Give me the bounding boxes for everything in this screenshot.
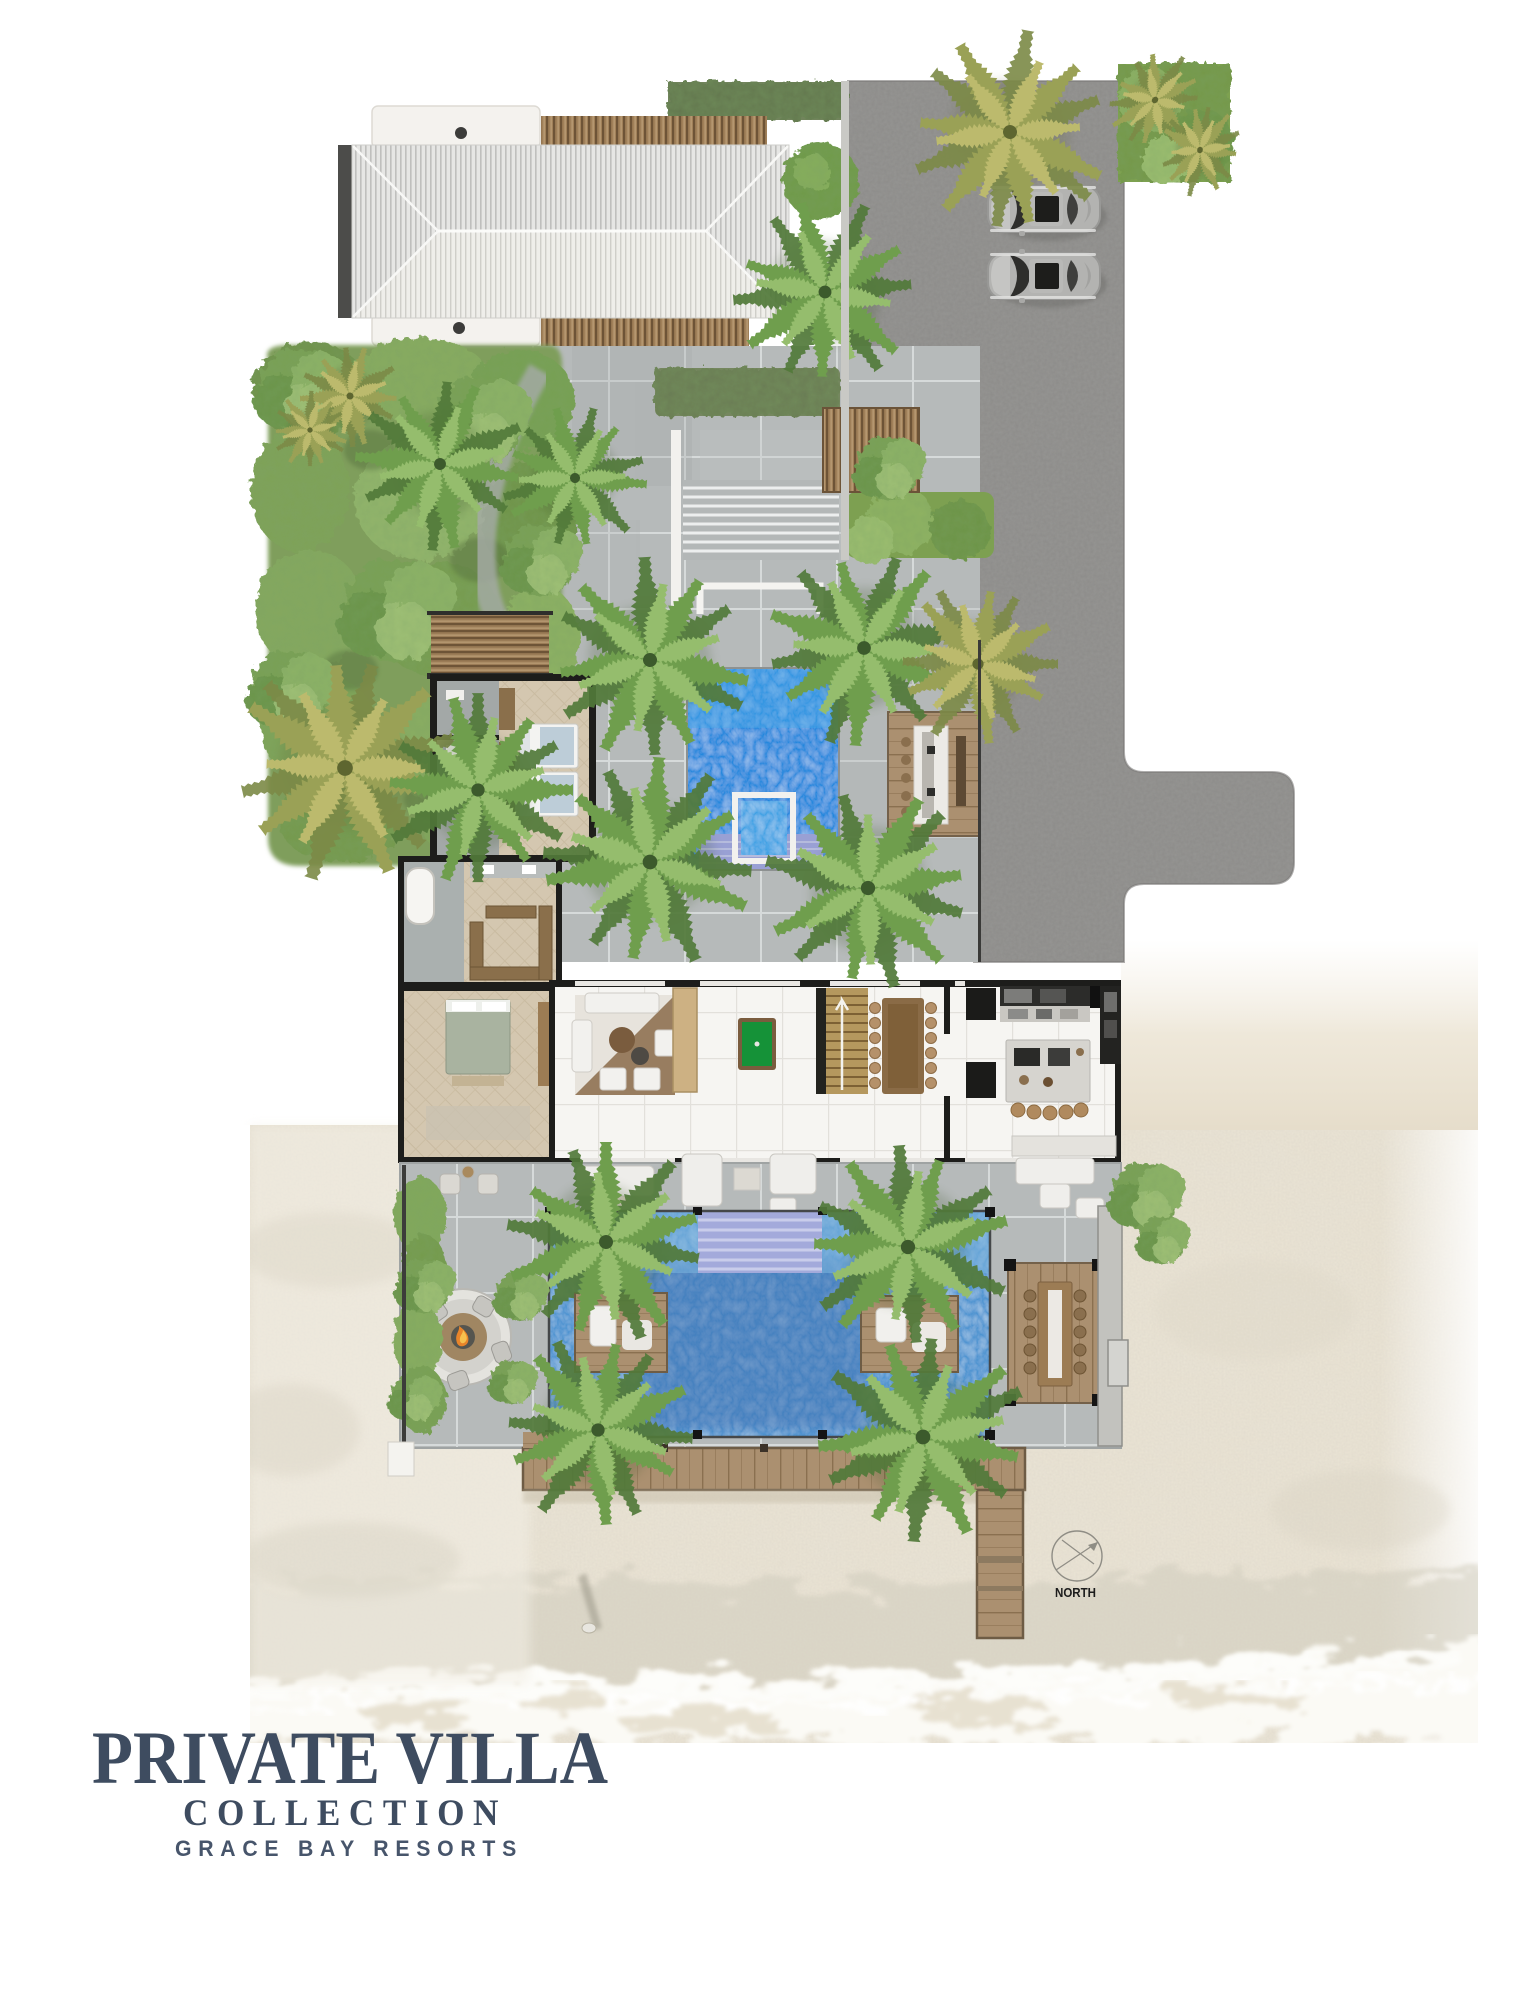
svg-text:COLLECTION: COLLECTION xyxy=(183,1793,507,1834)
svg-text:NORTH: NORTH xyxy=(1055,1585,1096,1600)
svg-text:PRIVATE VILLA: PRIVATE VILLA xyxy=(92,1717,608,1800)
svg-text:GRACE BAY RESORTS: GRACE BAY RESORTS xyxy=(175,1836,523,1861)
